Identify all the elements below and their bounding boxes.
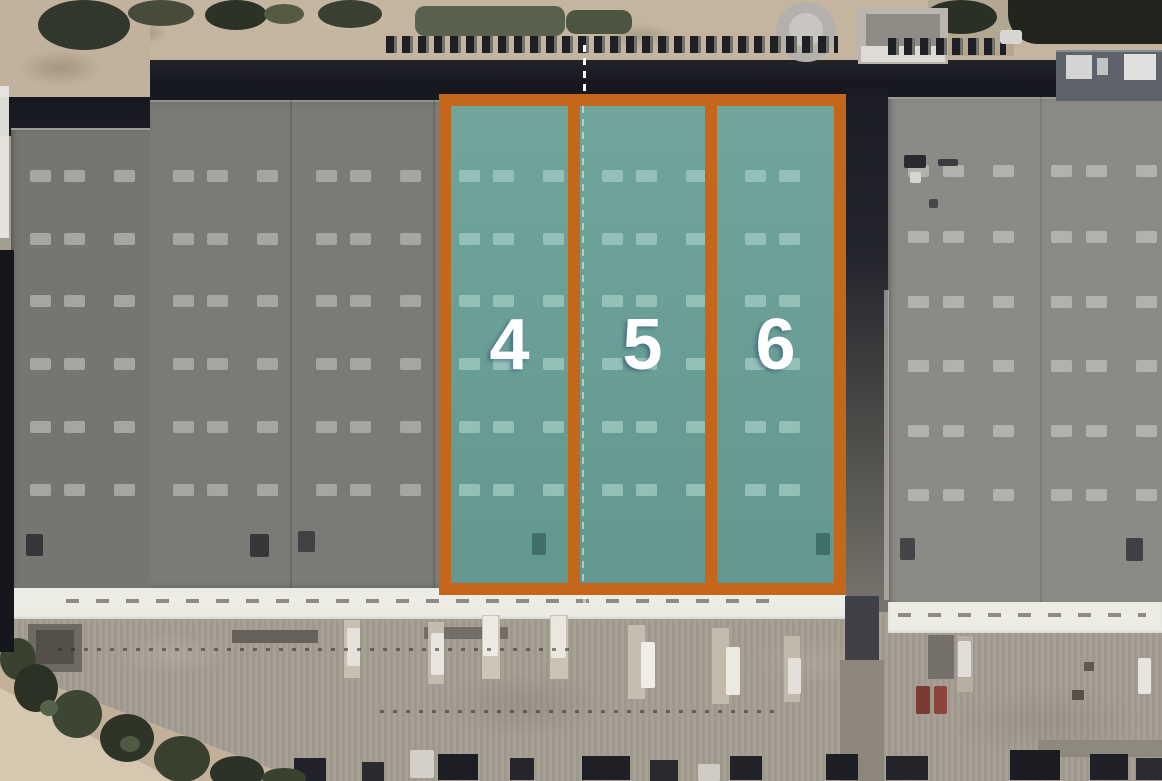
roof-hatch (26, 534, 43, 556)
roof-dot (929, 199, 938, 208)
vehicle (438, 754, 478, 780)
roof-hatch (298, 531, 315, 552)
bush (205, 0, 267, 30)
yard-mark (1072, 690, 1084, 700)
roof-vent (938, 159, 958, 166)
unit-divider (705, 106, 717, 583)
dock-shadow-bar (232, 630, 318, 643)
vehicle (1136, 758, 1162, 780)
vehicle (886, 756, 928, 780)
warehouse-left-annex-roof (11, 128, 150, 590)
truck (1138, 658, 1151, 694)
warehouse-right-roof (888, 97, 1162, 604)
unit-selection-overlay: 4 5 6 (439, 94, 846, 595)
red-container (934, 686, 947, 714)
roof-seam (433, 100, 435, 588)
unit-5-label-zone: 5 (580, 106, 705, 583)
shrub (154, 736, 210, 781)
truck (641, 642, 655, 688)
pavement-joint (380, 710, 780, 713)
truck (347, 628, 360, 666)
hedge (566, 10, 632, 34)
left-shadow-strip (0, 250, 14, 652)
car-row (888, 38, 1006, 55)
skylight-window (1097, 58, 1108, 75)
truck (431, 633, 444, 675)
vehicle (650, 760, 678, 781)
roof-seam (290, 100, 292, 588)
unit-6-label-zone: 6 (717, 106, 834, 583)
vehicle (826, 754, 858, 780)
truck (726, 647, 740, 695)
truck (788, 658, 801, 694)
shrub (52, 690, 102, 738)
pavement-joint (58, 648, 578, 651)
roof-vent (904, 155, 926, 168)
unit-label: 6 (755, 309, 795, 381)
dark-dock (928, 635, 954, 679)
unit-label: 5 (622, 309, 662, 381)
yard-mark (1084, 662, 1094, 671)
vehicle (1010, 750, 1060, 780)
white-van (1000, 30, 1022, 44)
vehicle (410, 750, 434, 778)
unit-divider (568, 106, 580, 583)
vehicle (510, 758, 534, 780)
unit-4-label-zone: 4 (451, 106, 568, 583)
vehicle (730, 756, 762, 780)
vehicle (582, 756, 630, 780)
roof-hatch (900, 538, 915, 560)
red-container (916, 686, 930, 714)
vehicle (1090, 754, 1128, 780)
shrub (262, 768, 306, 781)
roof-seam (1040, 97, 1042, 602)
car-row (386, 36, 838, 53)
truck (551, 616, 566, 658)
vehicle (698, 764, 720, 781)
unit-label: 4 (489, 309, 529, 381)
left-wall-edge (0, 86, 9, 238)
dock-door-marks (66, 599, 776, 603)
skylight-window (1124, 54, 1156, 80)
vehicle (362, 762, 384, 781)
service-road (845, 596, 879, 662)
bush (318, 0, 382, 28)
dock-canopy-right (888, 602, 1162, 633)
bush (264, 4, 304, 24)
roof-hatch (1126, 538, 1143, 561)
dock-door-marks (898, 613, 1146, 617)
hedge (415, 6, 565, 36)
demarcation-dashed-line-top (583, 45, 586, 96)
truck (958, 641, 971, 677)
dock-recess-inner (36, 630, 74, 664)
roof-dot (910, 172, 921, 183)
trees (1008, 0, 1162, 44)
building-gap (846, 88, 888, 633)
aerial-photo: 4 5 6 (0, 0, 1162, 781)
shrub-light (120, 736, 140, 752)
shrub-light (40, 700, 58, 716)
roof-hatch (250, 534, 269, 557)
demarcation-dashed-line-bottom (583, 597, 586, 610)
bush (38, 0, 130, 50)
bush (128, 0, 194, 26)
skylight-window (1066, 55, 1092, 79)
wall-edge (884, 290, 889, 600)
